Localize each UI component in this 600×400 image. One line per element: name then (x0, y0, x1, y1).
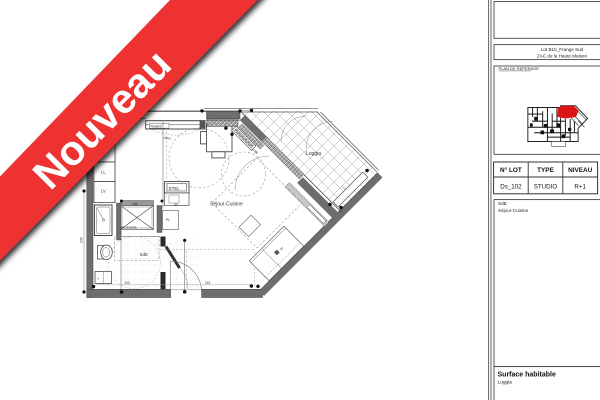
svg-text:Séjour-Cuisine: Séjour-Cuisine (210, 202, 243, 208)
svg-text:R+1: R+1 (574, 184, 586, 191)
svg-text:Loggia: Loggia (498, 379, 513, 385)
svg-text:Pare-douche: Pare-douche (119, 226, 137, 230)
svg-text:Séjour-Cuisine: Séjour-Cuisine (498, 208, 529, 213)
svg-text:LL: LL (101, 170, 106, 175)
svg-text:200: 200 (125, 281, 131, 285)
svg-text:243: 243 (205, 281, 211, 285)
svg-text:PLAN DE REPERAGE: PLAN DE REPERAGE (499, 66, 540, 71)
svg-text:N° LOT: N° LOT (500, 166, 522, 174)
svg-text:SdE: SdE (140, 252, 149, 257)
svg-text:VR: VR (253, 149, 259, 155)
svg-text:LV: LV (101, 189, 106, 194)
svg-text:140: 140 (132, 202, 138, 206)
svg-text:TYPE: TYPE (537, 167, 554, 174)
svg-text:ETEL: ETEL (169, 186, 180, 191)
svg-text:Ds_102: Ds_102 (500, 184, 522, 191)
svg-text:Loggia: Loggia (306, 151, 321, 157)
svg-text:VR: VR (164, 136, 168, 140)
svg-text:Surface habitable: Surface habitable (498, 372, 556, 379)
svg-text:NIVEAU: NIVEAU (568, 167, 593, 174)
svg-text:90: 90 (174, 203, 178, 207)
svg-text:Roulant: Roulant (151, 124, 162, 128)
svg-text:Lot B1b_Frange Sud: Lot B1b_Frange Sud (541, 47, 584, 52)
svg-text:SdE: SdE (498, 201, 507, 206)
svg-text:ZAC de la Haute Maison: ZAC de la Haute Maison (537, 53, 587, 58)
svg-text:PL: PL (166, 218, 170, 222)
svg-text:STUDIO: STUDIO (534, 184, 558, 191)
svg-text:249: 249 (80, 237, 84, 243)
